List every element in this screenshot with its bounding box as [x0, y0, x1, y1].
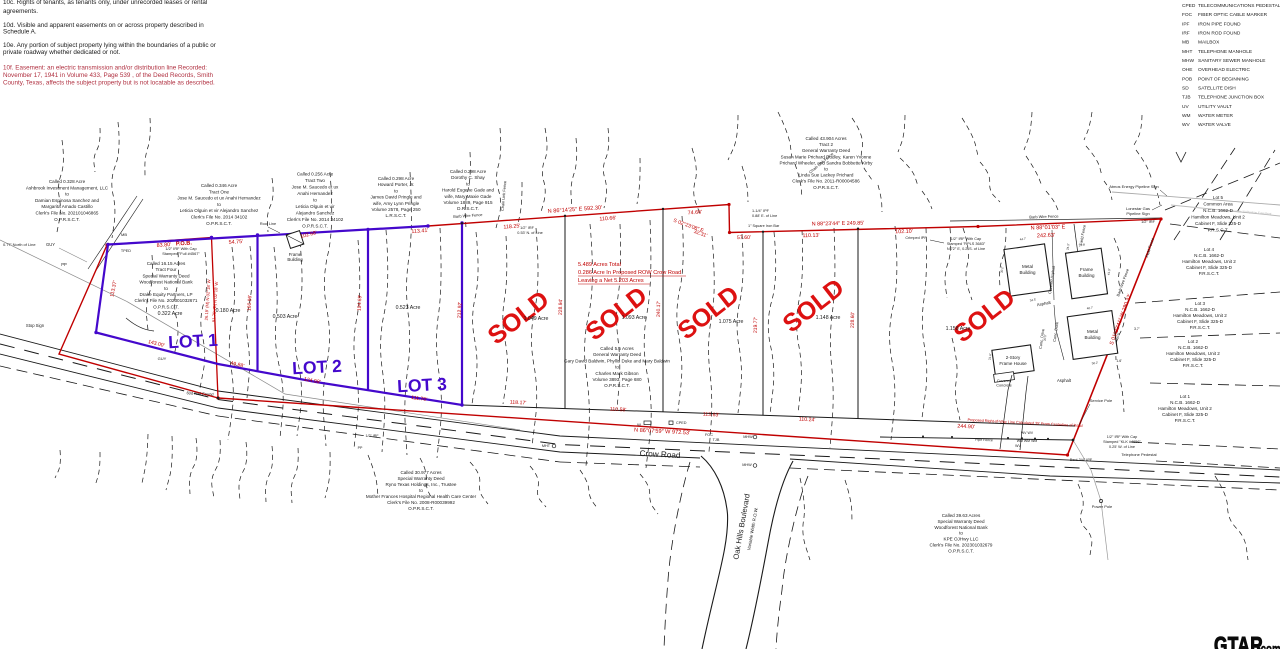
svg-text:Clerk's File No. 2014 34102: Clerk's File No. 2014 34102: [191, 215, 248, 220]
svg-text:CPED: CPED: [676, 421, 687, 425]
svg-text:1/2" IRF: 1/2" IRF: [365, 434, 379, 438]
svg-text:MHW: MHW: [742, 463, 752, 467]
svg-text:Susan Marie Prichard Dudley, K: Susan Marie Prichard Dudley, Karen Yvonn…: [781, 154, 872, 159]
svg-text:Cabinet F, Slide 325-D: Cabinet F, Slide 325-D: [1177, 319, 1224, 324]
svg-text:Atmos Energy Pipeline Sign: Atmos Energy Pipeline Sign: [1109, 184, 1159, 189]
svg-text:P.R.S.C.T.: P.R.S.C.T.: [1183, 363, 1204, 368]
svg-text:Leticia Olguin et vir: Leticia Olguin et vir: [295, 204, 335, 209]
svg-text:Power Pole: Power Pole: [1092, 504, 1113, 509]
svg-text:0.77' North of Line: 0.77' North of Line: [3, 242, 36, 247]
svg-text:113.63': 113.63': [703, 412, 720, 419]
svg-text:Special Warranty Deed: Special Warranty Deed: [397, 476, 445, 481]
svg-text:WATER METER: WATER METER: [1198, 113, 1233, 119]
svg-text:TJB: TJB: [713, 438, 720, 442]
svg-text:O.P.R.S.C.T.: O.P.R.S.C.T.: [153, 304, 179, 309]
svg-text:O.P.R.S.C.T.: O.P.R.S.C.T.: [948, 548, 974, 553]
svg-text:Dorothy C. Shay: Dorothy C. Shay: [451, 175, 485, 180]
svg-text:Common Area: Common Area: [1203, 202, 1233, 207]
svg-text:WV: WV: [1015, 444, 1021, 448]
svg-text:agreements.: agreements.: [3, 8, 38, 15]
svg-text:228.94': 228.94': [558, 299, 565, 315]
svg-text:Clerk's File No. 2011-R0000458: Clerk's File No. 2011-R00004586: [792, 179, 860, 184]
svg-text:118.25': 118.25': [503, 223, 521, 230]
svg-text:Called 0.346 Acre: Called 0.346 Acre: [201, 183, 238, 188]
svg-text:Clerk's File No. 2008-R0003999: Clerk's File No. 2008-R00039992: [387, 500, 455, 505]
svg-text:Clerk's File No. 2014 34102: Clerk's File No. 2014 34102: [287, 217, 344, 222]
svg-text:MHW: MHW: [743, 435, 753, 439]
svg-text:UTILITY VAULT: UTILITY VAULT: [1198, 104, 1232, 110]
svg-text:Leaving a Net 5.203 Acres: Leaving a Net 5.203 Acres: [578, 278, 644, 284]
svg-text:Called 0.298 Acre: Called 0.298 Acre: [450, 169, 487, 174]
svg-text:113.41': 113.41': [411, 228, 429, 235]
svg-text:Pipeline Sign: Pipeline Sign: [1126, 211, 1149, 216]
svg-text:to: to: [824, 167, 828, 172]
svg-text:219.77': 219.77': [753, 317, 760, 333]
svg-text:November 17, 1941 in Volume 43: November 17, 1941 in Volume 433, Page 53…: [3, 72, 214, 79]
svg-text:Building: Building: [1078, 273, 1095, 278]
svg-text:LOT 3: LOT 3: [397, 374, 448, 397]
svg-text:LOT 2: LOT 2: [292, 356, 343, 379]
svg-text:MHT: MHT: [542, 444, 551, 448]
svg-text:WM WM WM: WM WM WM: [1017, 439, 1038, 443]
svg-text:N.C.B. 1662-D: N.C.B. 1662-D: [1194, 253, 1225, 258]
svg-text:Leticia Olguin et vir Alejandr: Leticia Olguin et vir Alejandro Sanchez: [180, 208, 259, 213]
svg-text:Building: Building: [1084, 335, 1101, 340]
svg-text:N 88°23′44″ E 249.85′: N 88°23′44″ E 249.85′: [812, 221, 865, 228]
svg-text:Harold Eugene Gade and: Harold Eugene Gade and: [442, 188, 495, 193]
svg-text:1/2" IRF With Cap: 1/2" IRF With Cap: [951, 237, 981, 241]
svg-text:0.180 Acre: 0.180 Acre: [216, 308, 241, 314]
svg-text:Volume 3893, Page 680: Volume 3893, Page 680: [592, 377, 641, 382]
svg-text:Gary David Baldwin, Phyllis Du: Gary David Baldwin, Phyllis Duke and Mar…: [564, 358, 670, 363]
svg-text:wife, Amy Lynn Pringle: wife, Amy Lynn Pringle: [373, 201, 420, 206]
svg-text:N 88°01′03″ E: N 88°01′03″ E: [1030, 224, 1065, 231]
svg-text:Called 43.904 Acres: Called 43.904 Acres: [805, 136, 847, 141]
svg-text:TELEPHONE MANHOLE: TELEPHONE MANHOLE: [1198, 49, 1252, 55]
svg-text:3.7': 3.7': [1134, 327, 1140, 331]
svg-text:FOC: FOC: [1182, 12, 1193, 18]
svg-text:GUY: GUY: [46, 242, 55, 247]
svg-text:Clerk's File No. 202101046865: Clerk's File No. 202101046865: [36, 211, 99, 216]
svg-text:Stamped "RPLS 3683": Stamped "RPLS 3683": [947, 242, 986, 246]
svg-text:Bent 3/4" IPF: Bent 3/4" IPF: [1070, 458, 1093, 462]
svg-text:Schedule A.: Schedule A.: [3, 29, 37, 36]
svg-text:Metal: Metal: [1087, 329, 1098, 334]
svg-text:1/2" IRF: 1/2" IRF: [520, 226, 534, 230]
svg-text:10e. Any portion of subject pr: 10e. Any portion of subject property lyi…: [3, 42, 216, 49]
svg-text:Hamilton Meadows, Unit 2: Hamilton Meadows, Unit 2: [1166, 351, 1220, 356]
svg-text:O.P.R.S.C.T.: O.P.R.S.C.T.: [206, 221, 232, 226]
svg-text:FOC: FOC: [705, 433, 713, 437]
svg-text:Charles Mark Gibson: Charles Mark Gibson: [595, 371, 639, 376]
svg-text:Called 39.63 Acres: Called 39.63 Acres: [942, 513, 981, 518]
svg-text:Clerk's File No. 202301032679: Clerk's File No. 202301032679: [930, 543, 993, 548]
svg-text:Margarita Amado Castillo: Margarita Amado Castillo: [41, 204, 93, 209]
svg-text:WM: WM: [1182, 113, 1191, 119]
svg-text:110.58': 110.58': [610, 407, 627, 414]
svg-text:110.13': 110.13': [802, 233, 819, 239]
svg-text:Cabinet F, Slide 325-D: Cabinet F, Slide 325-D: [1162, 412, 1209, 417]
svg-text:242.63': 242.63': [1037, 233, 1055, 240]
svg-text:Called 30.977 Acres: Called 30.977 Acres: [400, 470, 442, 475]
svg-text:Volume 2578, Page 250: Volume 2578, Page 250: [371, 207, 420, 212]
svg-text:Roof Line: Roof Line: [260, 222, 276, 226]
svg-text:KPE OJHwy LLC: KPE OJHwy LLC: [944, 537, 980, 542]
svg-text:Lot 1: Lot 1: [1180, 394, 1191, 399]
svg-text:to: to: [466, 181, 470, 186]
svg-text:N.C.B. 1662-D: N.C.B. 1662-D: [1185, 307, 1216, 312]
svg-text:240.17': 240.17': [656, 301, 663, 317]
svg-text:GUY: GUY: [158, 356, 167, 361]
svg-text:0.523 Acre: 0.523 Acre: [396, 305, 421, 311]
svg-text:1/2" IRF With Cap: 1/2" IRF With Cap: [1107, 435, 1137, 439]
svg-text:IRF: IRF: [1182, 31, 1190, 37]
svg-text:POINT OF BEGINNING: POINT OF BEGINNING: [1198, 76, 1249, 82]
svg-text:Tract Two: Tract Two: [305, 178, 325, 183]
svg-text:Lot 5: Lot 5: [1213, 195, 1224, 200]
svg-text:228.60': 228.60': [850, 312, 857, 328]
svg-text:Service Pole: Service Pole: [1090, 398, 1113, 403]
svg-text:0.25' W. of Line: 0.25' W. of Line: [1109, 445, 1135, 449]
svg-text:Stop Sign: Stop Sign: [26, 323, 45, 328]
svg-text:Called 0.328 Acre: Called 0.328 Acre: [49, 179, 86, 184]
svg-text:private roadway whether dedica: private roadway whether dedicated or not…: [3, 49, 121, 56]
svg-text:O.P.R.S.C.T.: O.P.R.S.C.T.: [813, 185, 839, 190]
svg-text:Jose M. Saucedo et ux Anahi He: Jose M. Saucedo et ux Anahi Hernandez: [177, 196, 261, 201]
svg-text:SD: SD: [1182, 86, 1189, 92]
svg-text:0.53' N. of Line: 0.53' N. of Line: [517, 231, 542, 235]
svg-text:110.24': 110.24': [799, 417, 816, 424]
svg-text:W: W: [637, 422, 641, 427]
svg-text:Lot 2: Lot 2: [1188, 339, 1199, 344]
svg-text:L.R.S.C.T.: L.R.S.C.T.: [386, 213, 407, 218]
svg-text:Covered: Covered: [997, 379, 1011, 383]
svg-text:Called 0.298 Acre: Called 0.298 Acre: [378, 176, 415, 181]
svg-text:57.60': 57.60': [737, 235, 751, 241]
svg-text:Ryno Texas Holdings, Inc., Tru: Ryno Texas Holdings, Inc., Trustee: [386, 482, 457, 487]
svg-text:Drake Equity Partners, LP: Drake Equity Partners, LP: [139, 292, 192, 297]
svg-text:118.17': 118.17': [510, 400, 527, 407]
svg-text:Frame: Frame: [1080, 267, 1093, 272]
svg-text:IPF: IPF: [1182, 21, 1190, 27]
svg-text:Alejandro Sanchez: Alejandro Sanchez: [296, 211, 335, 216]
svg-text:O.P.R.S.C.T.: O.P.R.S.C.T.: [302, 224, 328, 229]
svg-text:Tract 2: Tract 2: [819, 142, 834, 147]
svg-text:General Warranty Deed: General Warranty Deed: [593, 352, 642, 357]
svg-text:Woodforest National Bank: Woodforest National Bank: [934, 525, 988, 530]
svg-text:Barb Wire Fence: Barb Wire Fence: [1029, 213, 1058, 219]
svg-text:TJB: TJB: [1182, 95, 1191, 101]
svg-text:D.R.S.C.T.: D.R.S.C.T.: [457, 206, 479, 211]
svg-text:FIBER OPTIC CABLE MARKER: FIBER OPTIC CABLE MARKER: [1198, 12, 1268, 18]
svg-text:0.286 Acre In Proposed ROW Cro: 0.286 Acre In Proposed ROW Crow Road: [578, 270, 681, 276]
svg-text:GTAR: GTAR: [1214, 633, 1263, 649]
svg-text:Jose M. Saucedo et ux: Jose M. Saucedo et ux: [292, 185, 339, 190]
svg-text:LOT 1: LOT 1: [168, 330, 219, 353]
svg-text:to: to: [313, 198, 317, 203]
svg-text:Clerk's File No. 202301032671: Clerk's File No. 202301032671: [135, 298, 198, 303]
svg-text:POB: POB: [1182, 76, 1192, 82]
svg-text:Lot 3: Lot 3: [1195, 301, 1206, 306]
svg-text:Frame House: Frame House: [999, 361, 1027, 366]
svg-text:N.C.B. 1662-D: N.C.B. 1662-D: [1203, 208, 1234, 213]
svg-text:James David Pringle and: James David Pringle and: [370, 195, 422, 200]
svg-text:1" Square Iron Bar: 1" Square Iron Bar: [748, 224, 780, 228]
svg-text:10c. Rights of tenants, as ten: 10c. Rights of tenants, as tenants only,…: [3, 0, 207, 6]
svg-text:74.66': 74.66': [687, 210, 702, 217]
svg-text:Called 0.256 Acre: Called 0.256 Acre: [297, 172, 334, 177]
svg-text:wife, Mary Maxie Gade: wife, Mary Maxie Gade: [445, 194, 492, 199]
svg-text:N 72° E, 0.2' S. of Line: N 72° E, 0.2' S. of Line: [947, 247, 985, 251]
svg-text:P.R.S.C.T.: P.R.S.C.T.: [1208, 228, 1229, 233]
svg-text:IRON PIPE FOUND: IRON PIPE FOUND: [1198, 21, 1241, 27]
svg-text:PP: PP: [358, 446, 363, 450]
svg-text:CPED: CPED: [1182, 3, 1196, 9]
svg-text:Prichard Wheeler, and Sandra B: Prichard Wheeler, and Sandra Bobbette Ki…: [780, 160, 874, 165]
svg-text:0.88' E. of Line: 0.88' E. of Line: [752, 214, 777, 218]
svg-text:to: to: [615, 365, 619, 370]
svg-text:Called 5.5 Acres: Called 5.5 Acres: [600, 346, 634, 351]
svg-text:TELECOMMUNICATIONS PEDESTAL: TELECOMMUNICATIONS PEDESTAL: [1198, 3, 1280, 9]
svg-text:54.75': 54.75': [228, 239, 243, 246]
svg-text:Stamped "KLK #4656": Stamped "KLK #4656": [1103, 440, 1141, 444]
svg-text:1.049 Acre: 1.049 Acre: [524, 316, 549, 322]
svg-text:WATER VALVE: WATER VALVE: [1198, 122, 1231, 128]
svg-text:OVERHEAD ELECTRIC: OVERHEAD ELECTRIC: [1198, 67, 1251, 73]
svg-text:WV: WV: [1182, 122, 1191, 128]
svg-text:TPED: TPED: [121, 249, 131, 253]
svg-text:1.075 Acre: 1.075 Acre: [719, 319, 744, 325]
svg-text:.com: .com: [1258, 642, 1280, 649]
svg-text:244.90': 244.90': [957, 424, 975, 431]
svg-text:Asphalt: Asphalt: [1057, 378, 1072, 383]
svg-text:Pipe Fence: Pipe Fence: [975, 438, 993, 443]
svg-text:to: to: [959, 531, 963, 536]
svg-text:Building: Building: [1019, 270, 1036, 275]
svg-text:to: to: [164, 286, 168, 291]
svg-text:Stamped "Full #4567": Stamped "Full #4567": [162, 251, 200, 256]
svg-text:MHT: MHT: [1182, 49, 1192, 55]
svg-text:WV WV: WV WV: [1021, 431, 1034, 435]
svg-text:10f. Easement: an electric tra: 10f. Easement: an electric transmission …: [3, 65, 207, 72]
svg-text:0.322 Acre: 0.322 Acre: [158, 311, 183, 317]
svg-text:General Warranty Deed: General Warranty Deed: [802, 148, 851, 153]
svg-text:N.C.B. 1662-D: N.C.B. 1662-D: [1170, 400, 1201, 405]
svg-text:Tract Four: Tract Four: [155, 267, 176, 272]
svg-text:MB: MB: [121, 232, 127, 237]
svg-text:Cabinet F, Slide 325-D: Cabinet F, Slide 325-D: [1170, 357, 1217, 362]
svg-text:Hamilton Meadows, Unit 2: Hamilton Meadows, Unit 2: [1191, 215, 1245, 220]
svg-text:P.R.S.C.T.: P.R.S.C.T.: [1190, 325, 1211, 330]
svg-text:Hamilton Meadows, Unit 2: Hamilton Meadows, Unit 2: [1158, 406, 1212, 411]
svg-text:Special Warranty Deed: Special Warranty Deed: [937, 519, 985, 524]
svg-text:to: to: [217, 202, 221, 207]
svg-text:Howard Porter, Jr.: Howard Porter, Jr.: [378, 182, 415, 187]
svg-text:Metal: Metal: [1022, 264, 1033, 269]
svg-text:N.C.B. 1662-D: N.C.B. 1662-D: [1178, 345, 1209, 350]
svg-text:Mother Frances Hospital Region: Mother Frances Hospital Regional Health …: [366, 494, 477, 499]
svg-text:Special Warranty Deed: Special Warranty Deed: [142, 273, 190, 278]
svg-text:O.P.R.S.C.T.: O.P.R.S.C.T.: [408, 506, 434, 511]
svg-text:to: to: [419, 488, 423, 493]
svg-text:O.P.R.S.C.T.: O.P.R.S.C.T.: [54, 217, 80, 222]
svg-text:Damian Espinosa Sanchez and: Damian Espinosa Sanchez and: [35, 198, 100, 203]
svg-text:Cabinet F, Slide 325-D: Cabinet F, Slide 325-D: [1195, 221, 1242, 226]
svg-text:to: to: [65, 192, 69, 197]
svg-text:UV: UV: [1182, 104, 1189, 110]
svg-text:MAILBOX: MAILBOX: [1198, 40, 1220, 46]
svg-text:P.R.S.C.T.: P.R.S.C.T.: [1199, 271, 1220, 276]
svg-text:0.503 Acre: 0.503 Acre: [273, 314, 298, 320]
svg-text:Building: Building: [287, 257, 303, 262]
svg-text:Tract One: Tract One: [209, 189, 230, 194]
svg-text:2-Story: 2-Story: [1006, 355, 1021, 360]
svg-text:Hamilton Meadows, Unit 2: Hamilton Meadows, Unit 2: [1182, 259, 1236, 264]
svg-text:110.66': 110.66': [599, 215, 617, 222]
svg-text:1.6': 1.6': [1116, 359, 1122, 363]
svg-text:102.10': 102.10': [895, 229, 913, 236]
svg-text:Woodforest National Bank: Woodforest National Bank: [139, 280, 193, 285]
svg-text:1/2" IRF: 1/2" IRF: [1141, 220, 1155, 224]
svg-text:Linda Sue Lackey Prichard: Linda Sue Lackey Prichard: [799, 173, 854, 178]
svg-text:Called 16.15 Acres: Called 16.15 Acres: [147, 261, 186, 266]
svg-text:to: to: [394, 188, 398, 193]
svg-text:MB: MB: [1182, 40, 1189, 46]
svg-text:1.148 Acre: 1.148 Acre: [816, 315, 841, 321]
svg-text:1-1/4" IPF: 1-1/4" IPF: [752, 209, 770, 213]
svg-text:212.92': 212.92': [457, 302, 464, 319]
svg-text:OHE: OHE: [1182, 67, 1192, 73]
svg-text:1.093 Acre: 1.093 Acre: [622, 315, 647, 321]
svg-text:1.158 Acre: 1.158 Acre: [946, 326, 971, 332]
svg-text:MHW: MHW: [1182, 58, 1194, 64]
svg-text:Telephone Pedestal: Telephone Pedestal: [1121, 452, 1156, 457]
svg-text:Volume 1889, Page 915: Volume 1889, Page 915: [443, 200, 492, 205]
svg-text:Ashbrook Investment Management: Ashbrook Investment Management, LLC: [26, 185, 109, 190]
svg-text:O.P.R.S.C.T.: O.P.R.S.C.T.: [604, 383, 630, 388]
svg-text:PP: PP: [61, 262, 67, 267]
svg-text:SATELLITE DISH: SATELLITE DISH: [1198, 86, 1236, 92]
svg-text:160.96': 160.96': [247, 295, 254, 312]
svg-text:Cabinet F, Slide 325-D: Cabinet F, Slide 325-D: [1186, 265, 1233, 270]
svg-text:Lot 4: Lot 4: [1204, 247, 1215, 252]
svg-text:194.69': 194.69': [357, 295, 364, 312]
svg-text:P.R.S.C.T.: P.R.S.C.T.: [1175, 418, 1196, 423]
svg-text:County, Texas, affects the sub: County, Texas, affects the subject prope…: [3, 80, 215, 87]
svg-text:5.489 Acres Total: 5.489 Acres Total: [578, 262, 621, 268]
svg-text:TELEPHONE JUNCTION BOX: TELEPHONE JUNCTION BOX: [1198, 95, 1265, 101]
svg-text:Anahi Hernandez: Anahi Hernandez: [297, 191, 333, 196]
svg-text:SANITARY SEWER MANHOLE: SANITARY SEWER MANHOLE: [1198, 58, 1265, 64]
svg-text:Hamilton Meadows, Unit 2: Hamilton Meadows, Unit 2: [1173, 313, 1227, 318]
svg-text:IRON ROD FOUND: IRON ROD FOUND: [1198, 31, 1241, 37]
svg-text:Crimped IPF: Crimped IPF: [905, 236, 927, 240]
